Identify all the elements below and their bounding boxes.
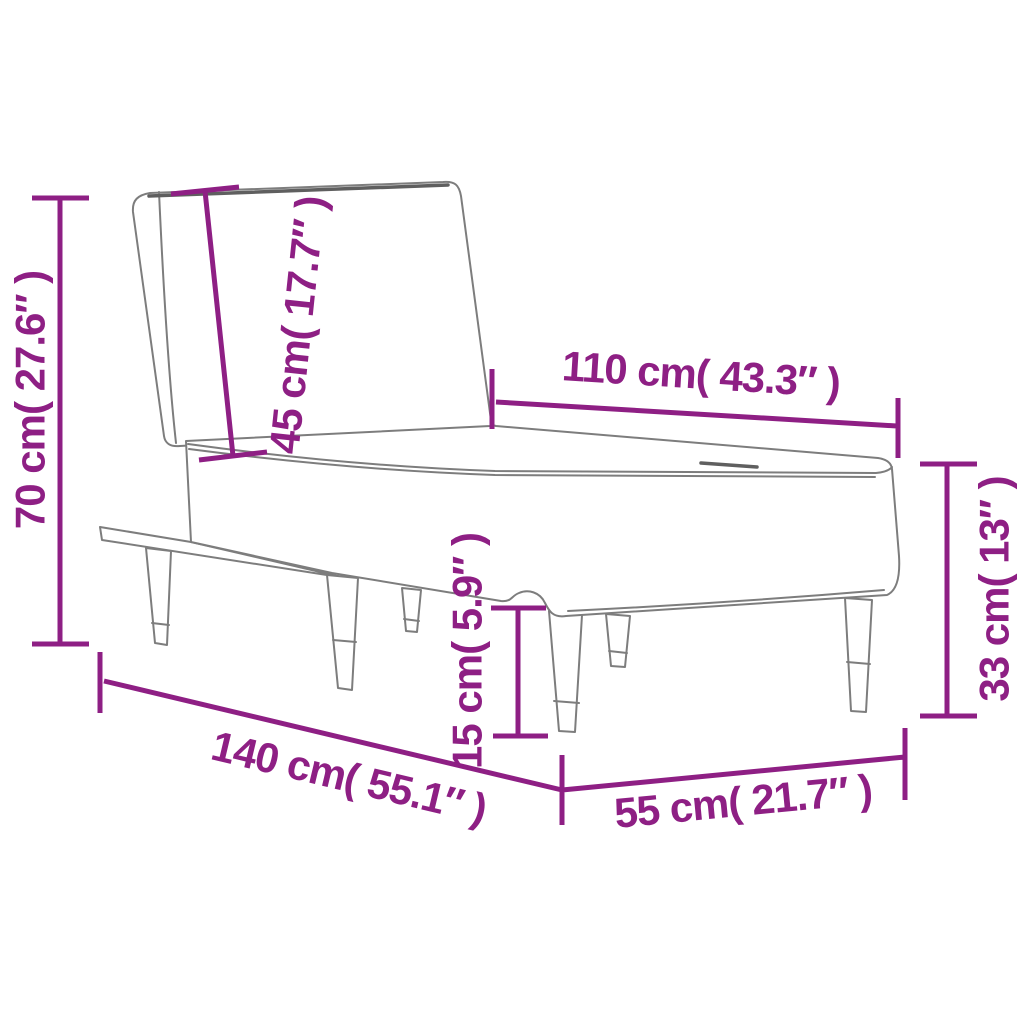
- dimension-line: [920, 464, 977, 716]
- dimension-diagram-page: 70 cm( 27.6″ ) 45 cm( 17.7″ ) 110 cm( 43…: [0, 0, 1024, 1024]
- leg-middle-left: [327, 575, 358, 690]
- dimension-label-side-height: 33 cm( 13″ ): [971, 476, 1018, 701]
- dimension-total-height: 70 cm( 27.6″ ): [7, 198, 89, 644]
- leg-front-left: [146, 548, 171, 645]
- leg-right: [845, 598, 872, 712]
- dimension-label-depth: 55 cm( 21.7″ ): [612, 765, 874, 837]
- leg-back-middle: [606, 614, 630, 667]
- dimension-label-total-height: 70 cm( 27.6″ ): [7, 271, 54, 529]
- dimension-total-length: 140 cm( 55.1″ ): [100, 652, 562, 833]
- dimension-depth: 55 cm( 21.7″ ): [562, 728, 905, 837]
- leg-back-left: [402, 588, 421, 632]
- chaise-lounge-dimension-diagram: 70 cm( 27.6″ ) 45 cm( 17.7″ ) 110 cm( 43…: [0, 0, 1024, 1024]
- dimension-line: [491, 608, 548, 736]
- leg-front-middle: [549, 611, 582, 732]
- dimension-label-leg-height: 15 cm( 5.9″ ): [444, 533, 491, 769]
- dimension-side-height: 33 cm( 13″ ): [920, 464, 1018, 716]
- dimension-label-seat-length: 110 cm( 43.3″ ): [561, 342, 842, 406]
